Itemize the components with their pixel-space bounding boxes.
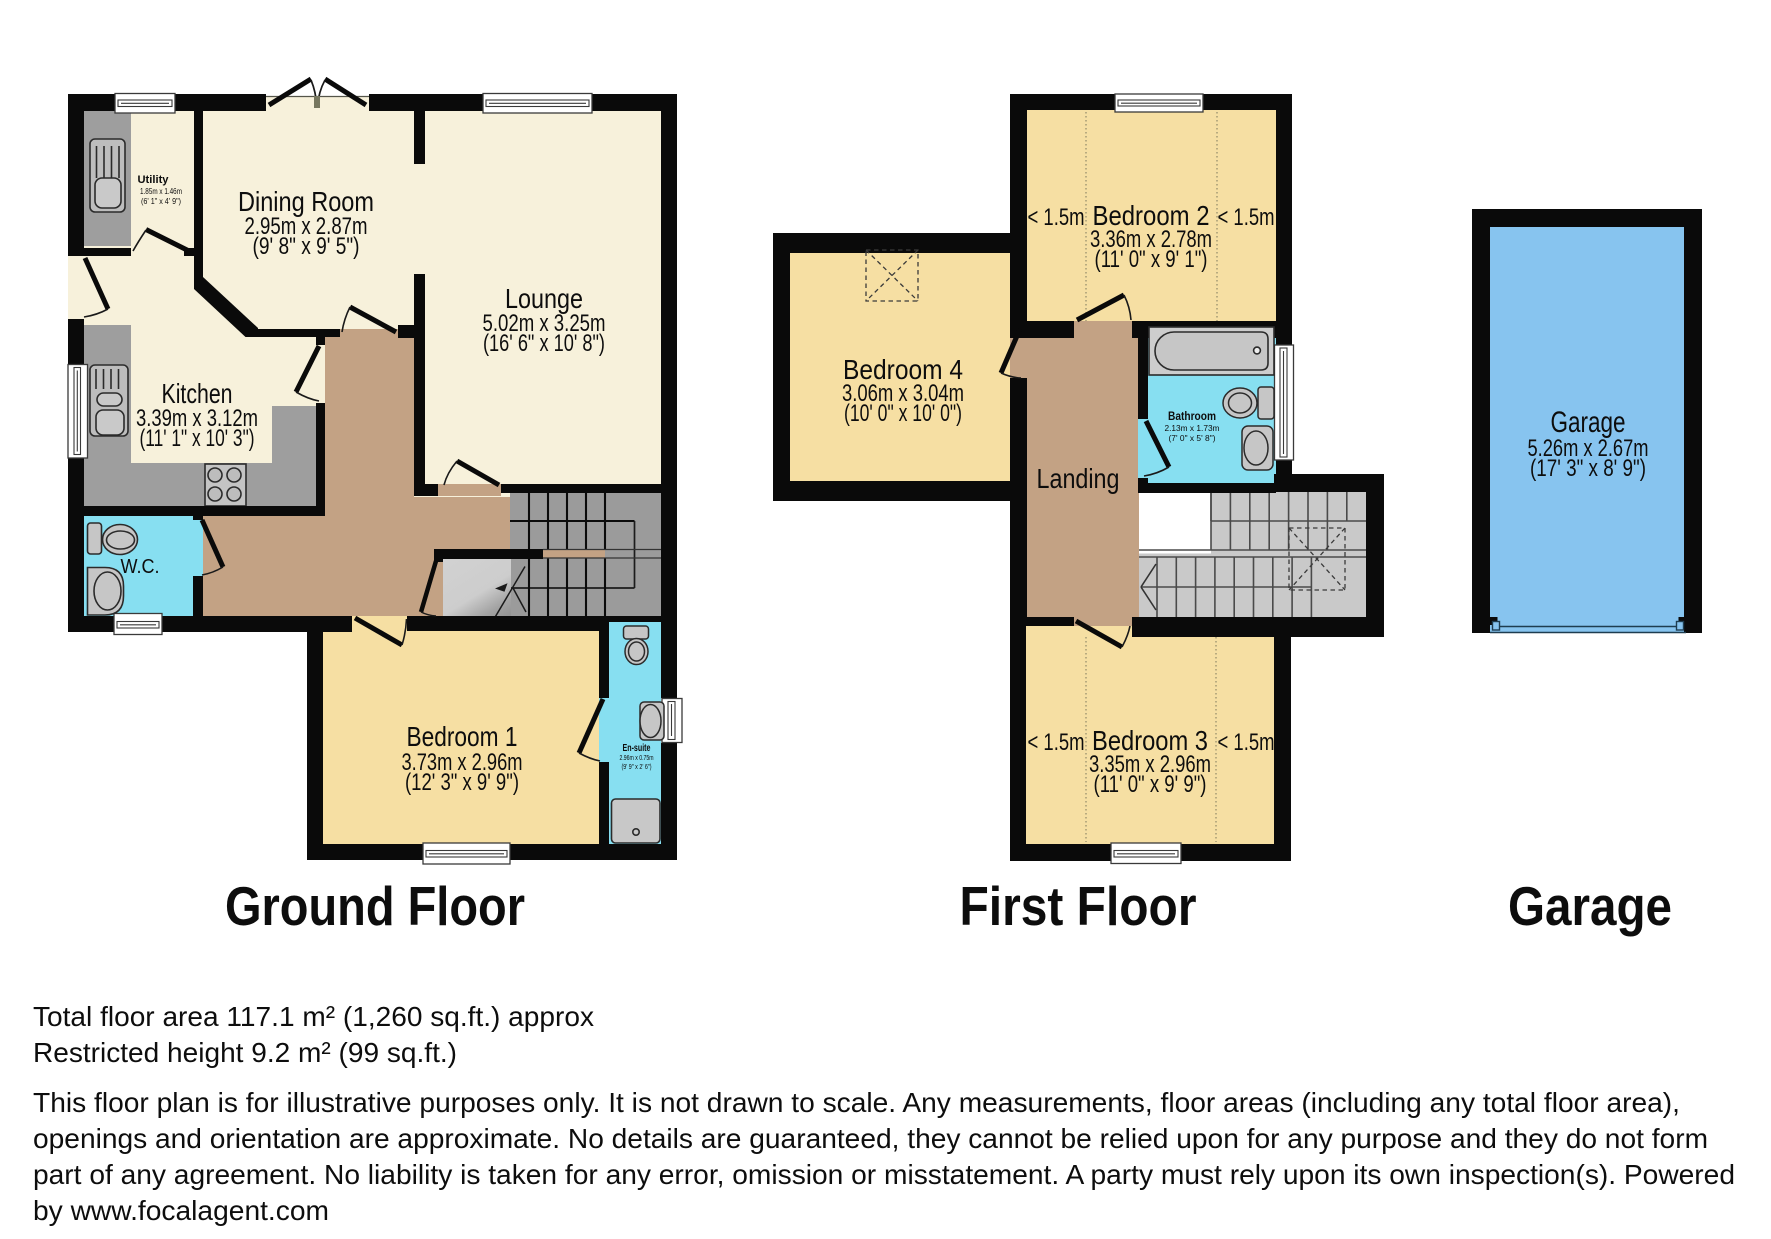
svg-text:(9' 8" x 9' 5"): (9' 8" x 9' 5") [253, 233, 360, 260]
svg-text:Bathroom: Bathroom [1168, 411, 1216, 423]
svg-text:1.85m x 1.46m: 1.85m x 1.46m [140, 187, 182, 196]
svg-text:Total floor area 117.1 m² (1,2: Total floor area 117.1 m² (1,260 sq.ft.)… [33, 1001, 594, 1032]
svg-text:(10' 0" x 10' 0"): (10' 0" x 10' 0") [844, 400, 962, 427]
svg-text:(7' 0" x 5' 8"): (7' 0" x 5' 8") [1169, 433, 1216, 443]
svg-text:(17' 3" x 8' 9"): (17' 3" x 8' 9") [1530, 455, 1646, 482]
svg-text:by www.focalagent.com: by www.focalagent.com [33, 1195, 329, 1226]
svg-text:Garage: Garage [1508, 875, 1672, 937]
svg-text:Restricted height 9.2 m² (99 s: Restricted height 9.2 m² (99 sq.ft.) [33, 1037, 457, 1068]
svg-text:This floor plan is for illustr: This floor plan is for illustrative purp… [33, 1087, 1680, 1118]
svg-text:< 1.5m: < 1.5m [1218, 729, 1275, 756]
svg-text:Ground Floor: Ground Floor [225, 875, 525, 937]
svg-text:(12' 3" x 9' 9"): (12' 3" x 9' 9") [405, 769, 519, 796]
svg-text:part of any agreement. No liab: part of any agreement. No liability is t… [33, 1159, 1735, 1190]
svg-text:Landing: Landing [1037, 463, 1120, 494]
svg-text:2.96m x 0.75m: 2.96m x 0.75m [620, 753, 654, 762]
svg-text:(9' 9" x 2' 6"): (9' 9" x 2' 6") [622, 762, 652, 771]
svg-text:Utility: Utility [138, 174, 170, 186]
svg-text:(11' 1" x 10' 3"): (11' 1" x 10' 3") [140, 425, 255, 452]
svg-text:< 1.5m: < 1.5m [1028, 729, 1085, 756]
svg-text:(11' 0" x 9' 1"): (11' 0" x 9' 1") [1095, 246, 1208, 273]
svg-text:(11' 0" x 9' 9"): (11' 0" x 9' 9") [1094, 771, 1207, 798]
svg-text:< 1.5m: < 1.5m [1028, 204, 1085, 231]
svg-text:(16' 6" x 10' 8"): (16' 6" x 10' 8") [483, 330, 605, 357]
svg-text:(6' 1" x 4' 9"): (6' 1" x 4' 9") [141, 197, 181, 206]
svg-text:2.13m x 1.73m: 2.13m x 1.73m [1165, 423, 1220, 433]
svg-text:First Floor: First Floor [960, 875, 1197, 937]
svg-text:< 1.5m: < 1.5m [1218, 204, 1275, 231]
svg-text:Bedroom 1: Bedroom 1 [407, 721, 518, 752]
svg-text:openings and orientation are a: openings and orientation are approximate… [33, 1123, 1708, 1154]
svg-text:W.C.: W.C. [121, 556, 160, 578]
